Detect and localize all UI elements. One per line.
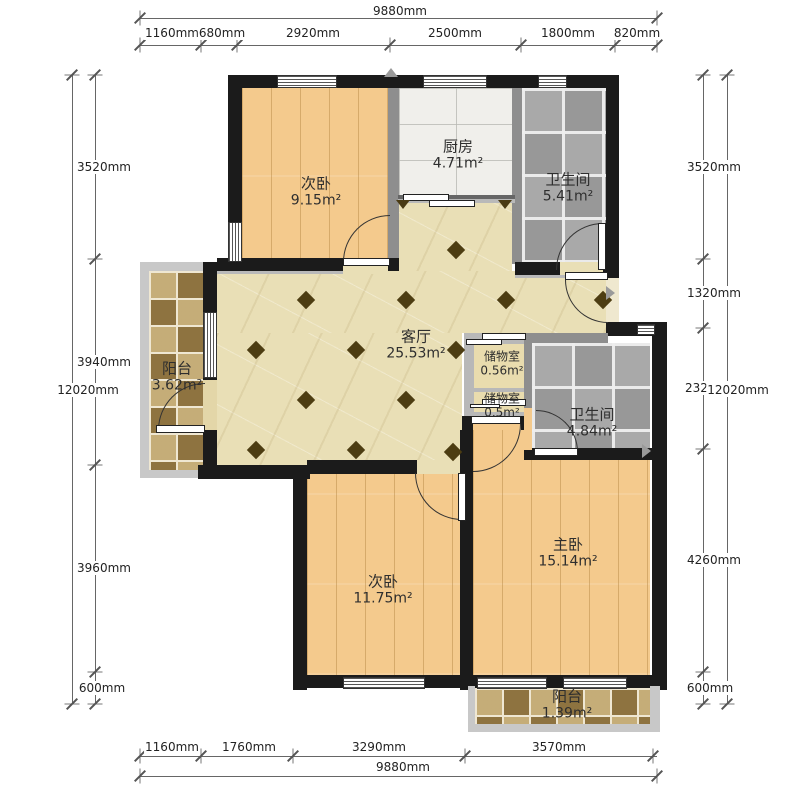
room-label-master-bedroom: 主卧 15.14m² [538, 536, 597, 571]
floor-diamond-icon [497, 291, 515, 309]
room-name: 卫生间 [543, 171, 593, 189]
dimension-line [140, 18, 657, 19]
floor-diamond-icon [247, 441, 265, 459]
dim-top-seg: 1800mm [540, 26, 596, 40]
dim-top-seg: 2920mm [285, 26, 341, 40]
dim-bottom-seg: 3570mm [531, 740, 587, 754]
room-area: 0.56m² [480, 364, 523, 378]
wall [650, 686, 660, 732]
dim-bottom-seg: 1160mm [144, 740, 200, 754]
floor-diamond-icon [447, 241, 465, 259]
dim-right-total: 12020mm [706, 383, 770, 397]
room-area: 11.75m² [353, 591, 412, 608]
room-label-balcony-left: 阳台 3.62m² [152, 360, 202, 395]
room-area: 1.39m² [542, 706, 592, 723]
arrow-icon [384, 68, 398, 77]
wall [140, 262, 203, 271]
door-leaf [534, 448, 578, 456]
room-name: 储物室 [484, 392, 520, 406]
floor-diamond-icon [247, 341, 265, 359]
window-icon [343, 677, 425, 689]
room-area: 0.5m² [484, 406, 520, 420]
wall [528, 333, 608, 343]
door-opening [524, 408, 532, 450]
dim-left-seg: 600mm [78, 681, 126, 695]
room-label-bedroom-bottom: 次卧 11.75m² [353, 573, 412, 608]
door-arc [415, 473, 462, 520]
dim-bottom-seg: 3290mm [351, 740, 407, 754]
room-area: 15.14m² [538, 554, 597, 571]
room-name: 客厅 [386, 328, 445, 346]
floor-diamond-icon [347, 341, 365, 359]
room-label-balcony-bottom: 阳台 1.39m² [542, 688, 592, 723]
door-opening [417, 460, 460, 474]
room-area: 3.62m² [152, 378, 202, 395]
window-icon [423, 75, 487, 88]
arrow-icon [498, 200, 512, 209]
dimension-line [140, 756, 657, 757]
dimension-line [140, 776, 657, 777]
wall [307, 460, 419, 474]
window-icon [228, 222, 242, 262]
dim-left-total: 12020mm [56, 383, 120, 397]
floor-plan-canvas: 次卧 9.15m² 厨房 4.71m² 卫生间 5.41m² 客厅 25.53m… [0, 0, 800, 800]
sliding-door [466, 339, 502, 345]
arrow-icon [642, 444, 651, 458]
dim-top-total: 9880mm [372, 4, 428, 18]
room-name: 厨房 [433, 138, 483, 156]
dim-top-seg: 820mm [613, 26, 661, 40]
room-name: 阳台 [152, 360, 202, 378]
room-label-bath-top: 卫生间 5.41m² [543, 171, 593, 206]
dim-right-seg: 600mm [686, 681, 734, 695]
door-leaf [156, 425, 205, 433]
arrow-icon [606, 286, 615, 300]
room-area: 9.15m² [291, 193, 341, 210]
wall [140, 262, 149, 478]
window-icon [203, 312, 217, 378]
plan-geometry [0, 0, 800, 800]
sliding-door [429, 200, 475, 207]
dim-left-seg: 3520mm [76, 160, 132, 174]
floor-diamond-icon [347, 441, 365, 459]
room-label-bedroom-top: 次卧 9.15m² [291, 175, 341, 210]
floor-diamond-icon [297, 291, 315, 309]
dim-top-seg: 1160mm [144, 26, 200, 40]
room-area: 25.53m² [386, 346, 445, 363]
room-name: 储物室 [480, 350, 523, 364]
door-arc [343, 215, 390, 262]
door-arc [473, 424, 521, 472]
room-name: 卫生间 [567, 406, 617, 424]
window-icon [637, 324, 655, 335]
wall [512, 88, 522, 264]
room-area: 5.41m² [543, 189, 593, 206]
door-leaf [458, 473, 466, 521]
room-name: 次卧 [291, 175, 341, 193]
wall [524, 450, 532, 460]
floor-diamond-icon [397, 391, 415, 409]
room-name: 阳台 [542, 688, 592, 706]
dim-right-seg: 4260mm [686, 553, 742, 567]
floor-diamond-icon [397, 291, 415, 309]
floor-diamond-icon [297, 391, 315, 409]
dim-bottom-seg: 1760mm [221, 740, 277, 754]
dim-bottom-total: 9880mm [375, 760, 431, 774]
room-label-bath-mid: 卫生间 4.84m² [567, 406, 617, 441]
window-icon [277, 75, 337, 88]
room-area: 4.84m² [567, 424, 617, 441]
dim-right-seg: 3520mm [686, 160, 742, 174]
wall [140, 470, 203, 478]
floor-diamond-icon [447, 341, 465, 359]
dim-top-seg: 680mm [198, 26, 246, 40]
dim-left-seg: 3940mm [76, 355, 132, 369]
dim-right-seg: 1320mm [686, 286, 742, 300]
wall [468, 724, 660, 732]
door-arc [556, 223, 603, 270]
door-leaf [343, 258, 390, 266]
room-label-kitchen: 厨房 4.71m² [433, 138, 483, 173]
door-leaf [565, 272, 608, 280]
window-icon [538, 75, 567, 88]
door-leaf [598, 223, 606, 270]
room-label-storage-top: 储物室 0.56m² [480, 350, 523, 379]
wall [515, 262, 560, 275]
wall [293, 465, 307, 690]
wall [652, 336, 667, 690]
room-label-living: 客厅 25.53m² [386, 328, 445, 363]
wall [460, 430, 473, 690]
window-icon [477, 677, 547, 689]
dim-top-seg: 2500mm [427, 26, 483, 40]
room-name: 次卧 [353, 573, 412, 591]
arrow-icon [396, 200, 410, 209]
wall [606, 75, 619, 278]
dim-left-seg: 3960mm [76, 561, 132, 575]
door-opening [203, 380, 217, 430]
dimension-line [140, 45, 657, 46]
room-name: 主卧 [538, 536, 597, 554]
room-area: 4.71m² [433, 156, 483, 173]
room-label-storage-bottom: 储物室 0.5m² [484, 392, 520, 421]
